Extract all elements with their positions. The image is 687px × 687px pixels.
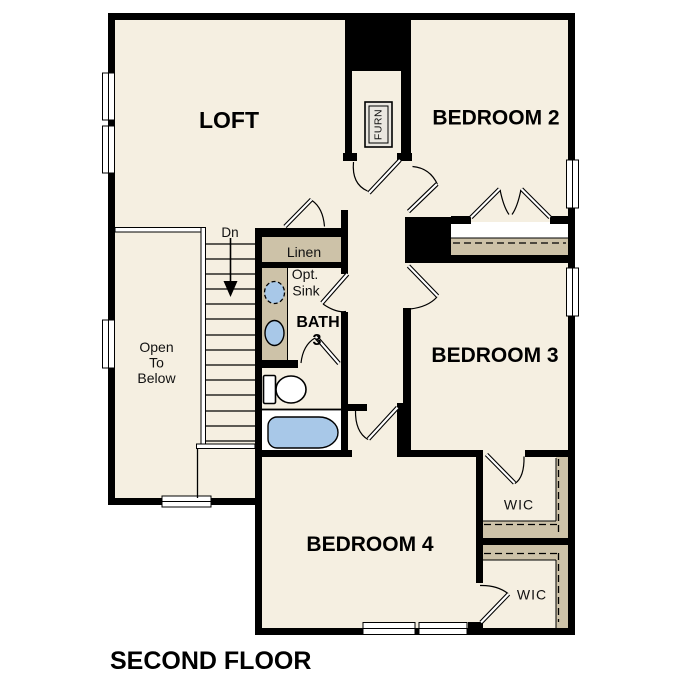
wall-bedroom3-left	[403, 308, 411, 408]
wall-bedroom4-left	[255, 228, 262, 635]
wic-lower-label: WIC	[517, 587, 547, 603]
wic-lower-shelf-right	[556, 560, 568, 628]
wall-closet-bottom	[405, 255, 575, 263]
wall-bedroom3-bottom-right	[525, 450, 575, 457]
open-to-below-line3: Below	[137, 370, 176, 386]
wall-furnace-stub-left	[343, 153, 357, 161]
railing-right	[201, 228, 206, 446]
window-left-2	[103, 126, 115, 173]
window-bottom-2	[419, 623, 467, 635]
wic-upper-shelf-bottom	[483, 521, 568, 538]
wic-upper-label: WIC	[504, 497, 534, 513]
wall-top	[108, 13, 575, 20]
wall-wic-separator	[476, 538, 575, 545]
wall-wic-lower-stub	[468, 622, 483, 635]
window-left-3	[103, 320, 115, 368]
wall-furnace-left	[345, 13, 352, 153]
window-left-1	[103, 73, 115, 120]
bedroom3-label: BEDROOM 3	[431, 344, 558, 367]
loft-label: LOFT	[199, 107, 259, 133]
optional-sink-label-line1: Opt.	[292, 266, 318, 282]
furnace-unit: FURN	[365, 102, 392, 147]
floor-plan-svg: FURN LOFT BEDROOM 2 BEDROOM 3 BEDROOM 4 …	[0, 0, 687, 687]
bath-compartment-divider	[262, 409, 341, 411]
sink-basin	[265, 321, 284, 346]
window-right-1	[567, 160, 579, 208]
wall-linen-top	[255, 228, 348, 237]
furnace-label: FURN	[373, 109, 385, 140]
bedroom2-closet-floor	[451, 222, 568, 238]
floor-stairwell	[115, 228, 255, 498]
landing-edge	[197, 444, 256, 449]
wall-linen-stub-up	[341, 210, 348, 237]
window-right-2	[567, 268, 579, 316]
bedroom2-closet-shelf	[451, 238, 568, 255]
bathtub	[268, 417, 338, 448]
bath3-number: 3	[313, 332, 322, 349]
wall-wic-left	[476, 450, 483, 583]
optional-sink-basin	[265, 282, 285, 304]
wall-bath-bottom	[255, 450, 352, 457]
optional-sink-label-line2: Sink	[292, 283, 320, 299]
wall-hall-stub	[345, 404, 367, 411]
stair-direction-label: Dn	[221, 225, 238, 240]
window-bottom-1	[363, 623, 415, 635]
wall-bath-right	[341, 312, 348, 457]
railing-top	[115, 228, 202, 233]
wall-closet-stub-right	[550, 216, 568, 224]
open-to-below-line1: Open	[139, 339, 173, 355]
bedroom2-label: BEDROOM 2	[432, 107, 559, 130]
bath3-label: BATH	[296, 314, 339, 331]
wall-bedroom3-left-lower	[397, 403, 411, 457]
open-to-below-line2: To	[149, 355, 164, 371]
window-bottom-left	[162, 496, 211, 507]
wall-chase-block	[345, 13, 408, 71]
wall-furnace-right	[401, 13, 411, 153]
wic-lower-shelf-top	[483, 545, 568, 560]
wall-closet-stub-left	[451, 216, 471, 224]
toilet	[264, 376, 307, 404]
linen-label: Linen	[287, 244, 321, 260]
wall-bath-stub	[262, 360, 298, 368]
wall-bedroom3-bottom-left	[403, 450, 483, 457]
floor-plan: FURN LOFT BEDROOM 2 BEDROOM 3 BEDROOM 4 …	[0, 0, 687, 687]
wall-linen-right	[341, 237, 348, 274]
plan-title: SECOND FLOOR	[110, 647, 311, 675]
bedroom4-label: BEDROOM 4	[306, 533, 434, 556]
